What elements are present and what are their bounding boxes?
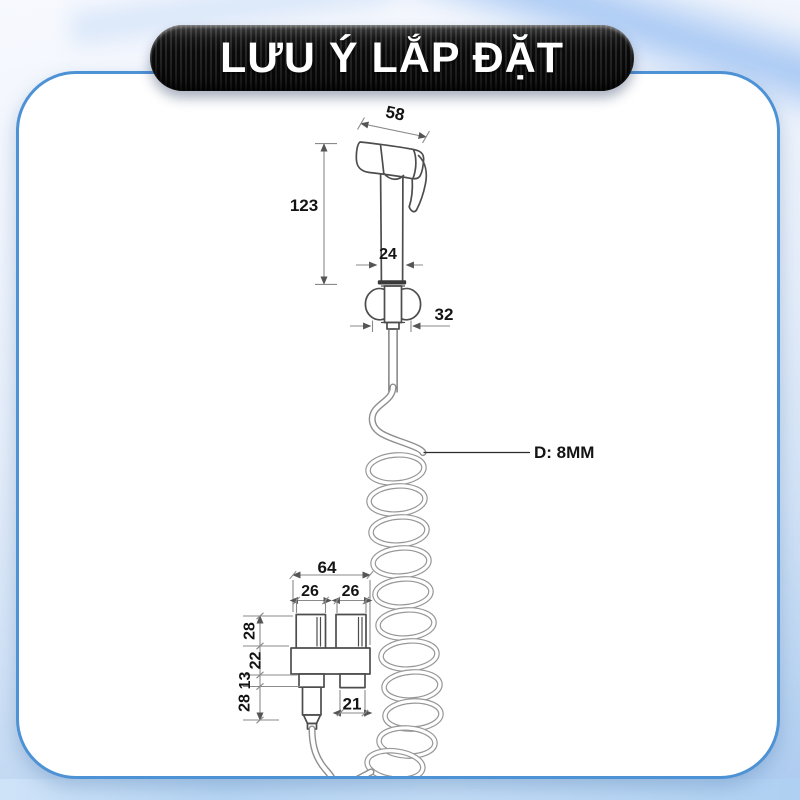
title-banner: LƯU Ý LẮP ĐẶT bbox=[150, 25, 634, 91]
dim-lip-height: 13 bbox=[237, 672, 254, 690]
dim-mid-height: 22 bbox=[248, 652, 265, 670]
dim-handle-width: 24 bbox=[379, 246, 397, 263]
banner-title: LƯU Ý LẮP ĐẶT bbox=[220, 34, 564, 83]
dim-head-width: 58 bbox=[384, 102, 406, 124]
sprayer-head-drawing bbox=[356, 142, 426, 392]
dim-upper-height: 28 bbox=[242, 622, 259, 640]
dim-left-port-width: 26 bbox=[301, 583, 319, 600]
content-card: 58 123 24 32 D: 8MM 64 26 26 28 22 13 28… bbox=[16, 71, 780, 779]
coil-hose-drawing bbox=[312, 387, 442, 779]
dim-bracket-total-width: 64 bbox=[318, 558, 337, 577]
hose-diameter-label: D: 8MM bbox=[534, 443, 594, 462]
dimension-labels: 58 123 24 32 D: 8MM 64 26 26 28 22 13 28… bbox=[237, 102, 595, 713]
dim-right-outlet-width: 21 bbox=[343, 695, 362, 714]
installation-diagram: 58 123 24 32 D: 8MM 64 26 26 28 22 13 28… bbox=[16, 71, 780, 779]
bottom-blue-band bbox=[0, 779, 800, 800]
dim-sprayer-height: 123 bbox=[290, 196, 318, 215]
dim-lower-height: 28 bbox=[237, 694, 254, 712]
page-background: { "title_banner": { "text": "LƯU Ý LẮP Đ… bbox=[0, 0, 800, 800]
dim-right-port-width: 26 bbox=[342, 583, 360, 600]
dim-connector-width: 32 bbox=[435, 305, 454, 324]
